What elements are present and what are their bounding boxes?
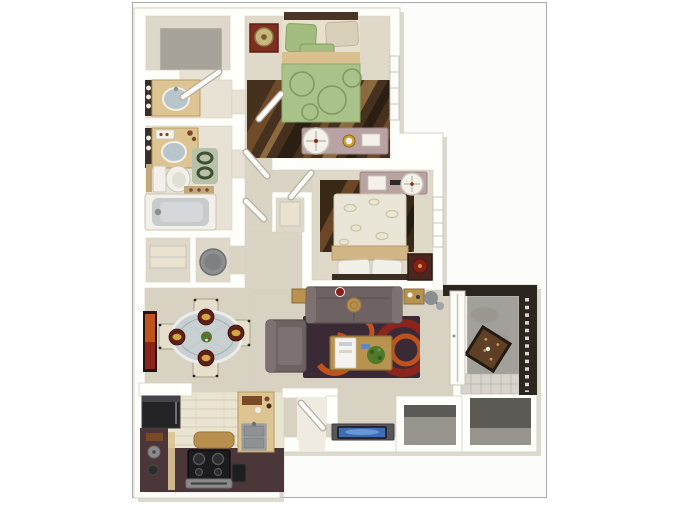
dresser-tray bbox=[368, 176, 386, 190]
wall-art-bottom bbox=[145, 342, 155, 369]
mirror-center bbox=[410, 182, 414, 186]
toilet-tank bbox=[153, 166, 166, 192]
cup bbox=[255, 407, 261, 413]
clock-face bbox=[346, 138, 352, 144]
burner bbox=[215, 469, 222, 476]
basket bbox=[347, 298, 361, 312]
vanity-light bbox=[146, 136, 151, 141]
bed-green bbox=[282, 12, 361, 122]
vanity-light bbox=[146, 104, 151, 109]
closet-b-floor bbox=[470, 428, 531, 445]
red-dish bbox=[336, 288, 345, 297]
floor-plan-page bbox=[0, 0, 680, 510]
counter-tray bbox=[156, 130, 174, 139]
floor-plan-image bbox=[0, 0, 680, 510]
vanity-light bbox=[146, 146, 151, 151]
tray-item bbox=[159, 133, 162, 136]
linen-shelf bbox=[280, 202, 300, 226]
tv-glare bbox=[345, 429, 379, 435]
end-table bbox=[292, 289, 306, 303]
cutting-board bbox=[146, 433, 163, 441]
tub-faucet bbox=[155, 209, 161, 215]
bottle bbox=[187, 130, 193, 136]
floor-mat bbox=[194, 432, 234, 448]
headboard bbox=[332, 274, 408, 280]
trash-bin bbox=[232, 464, 246, 482]
faucet bbox=[174, 87, 178, 91]
vanity-doorway bbox=[232, 90, 245, 114]
entry-side-wall bbox=[326, 396, 338, 424]
closet-a-back-wall bbox=[404, 405, 456, 417]
shelf-item bbox=[197, 188, 201, 192]
wall-art-top bbox=[145, 314, 155, 342]
dresser-bedroom2 bbox=[360, 172, 427, 195]
sink bbox=[162, 142, 186, 162]
sliding-patio-door bbox=[450, 291, 465, 385]
potted-plant bbox=[367, 346, 385, 364]
duvet bbox=[334, 194, 406, 250]
lamp-finial bbox=[261, 34, 267, 40]
door-handle bbox=[453, 335, 456, 338]
concrete-mottle bbox=[471, 307, 499, 323]
end-table bbox=[404, 289, 424, 304]
tray-item bbox=[165, 133, 168, 136]
pot bbox=[148, 465, 158, 475]
dresser-tray bbox=[362, 134, 380, 146]
sofa-armrest bbox=[306, 287, 316, 323]
coffee-table bbox=[330, 336, 392, 370]
mirror-center bbox=[314, 139, 318, 143]
bath-doorway bbox=[232, 150, 245, 178]
bedroom2-window bbox=[433, 197, 443, 247]
kitchen-island bbox=[238, 392, 274, 452]
kitchen-dining-wall bbox=[139, 383, 192, 396]
basket-inner bbox=[205, 254, 222, 271]
faucet bbox=[252, 422, 256, 426]
towel-cabinet bbox=[146, 164, 152, 192]
sofa bbox=[306, 287, 402, 323]
entry-threshold bbox=[299, 440, 325, 452]
bed-cream bbox=[332, 194, 408, 280]
shelf-item bbox=[189, 188, 193, 192]
bottle bbox=[192, 137, 196, 141]
storage-doorway bbox=[230, 246, 245, 274]
burner bbox=[196, 469, 203, 476]
stove bbox=[186, 450, 232, 488]
remote bbox=[361, 344, 370, 349]
footboard-blanket bbox=[332, 246, 408, 260]
closet-b-back-wall bbox=[470, 398, 531, 428]
burner bbox=[213, 454, 224, 465]
dresser-bedroom1 bbox=[302, 128, 388, 154]
bathtub-water bbox=[160, 202, 203, 222]
burner bbox=[194, 454, 205, 465]
pillow bbox=[325, 21, 358, 47]
armchair bbox=[266, 320, 306, 372]
closet-a-floor bbox=[404, 417, 456, 445]
vanity-room bbox=[145, 80, 200, 116]
bowl-item bbox=[418, 264, 422, 268]
vanity-light bbox=[146, 95, 151, 100]
vanity-light bbox=[146, 86, 151, 91]
sofa-armrest bbox=[392, 287, 402, 323]
cutting-board bbox=[242, 396, 262, 405]
hallway-wide-floor bbox=[245, 232, 302, 290]
closet-carpet bbox=[160, 28, 222, 70]
toilet-seat bbox=[172, 172, 186, 188]
cabinet-face bbox=[168, 432, 175, 490]
shelf-item bbox=[205, 188, 209, 192]
